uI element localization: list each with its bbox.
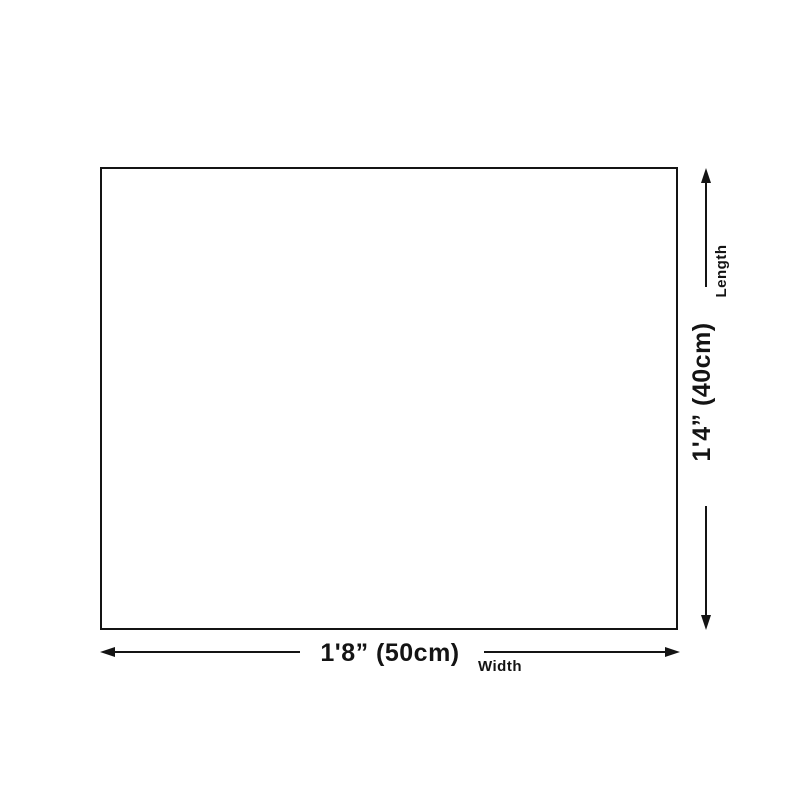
product-outline-box — [100, 167, 678, 630]
dimension-diagram: 1'8” (50cm) Width Length 1'4” (40cm) — [0, 0, 800, 800]
width-dimension-label: Width — [455, 657, 545, 677]
width-arrow-line-right — [484, 651, 669, 653]
arrow-right-icon — [665, 647, 680, 657]
length-arrow-line-top — [705, 180, 707, 287]
width-arrow-line-left — [112, 651, 300, 653]
length-dimension-value: 1'4” (40cm) — [687, 292, 717, 492]
arrow-down-icon — [701, 615, 711, 630]
length-arrow-line-bottom — [705, 506, 707, 618]
